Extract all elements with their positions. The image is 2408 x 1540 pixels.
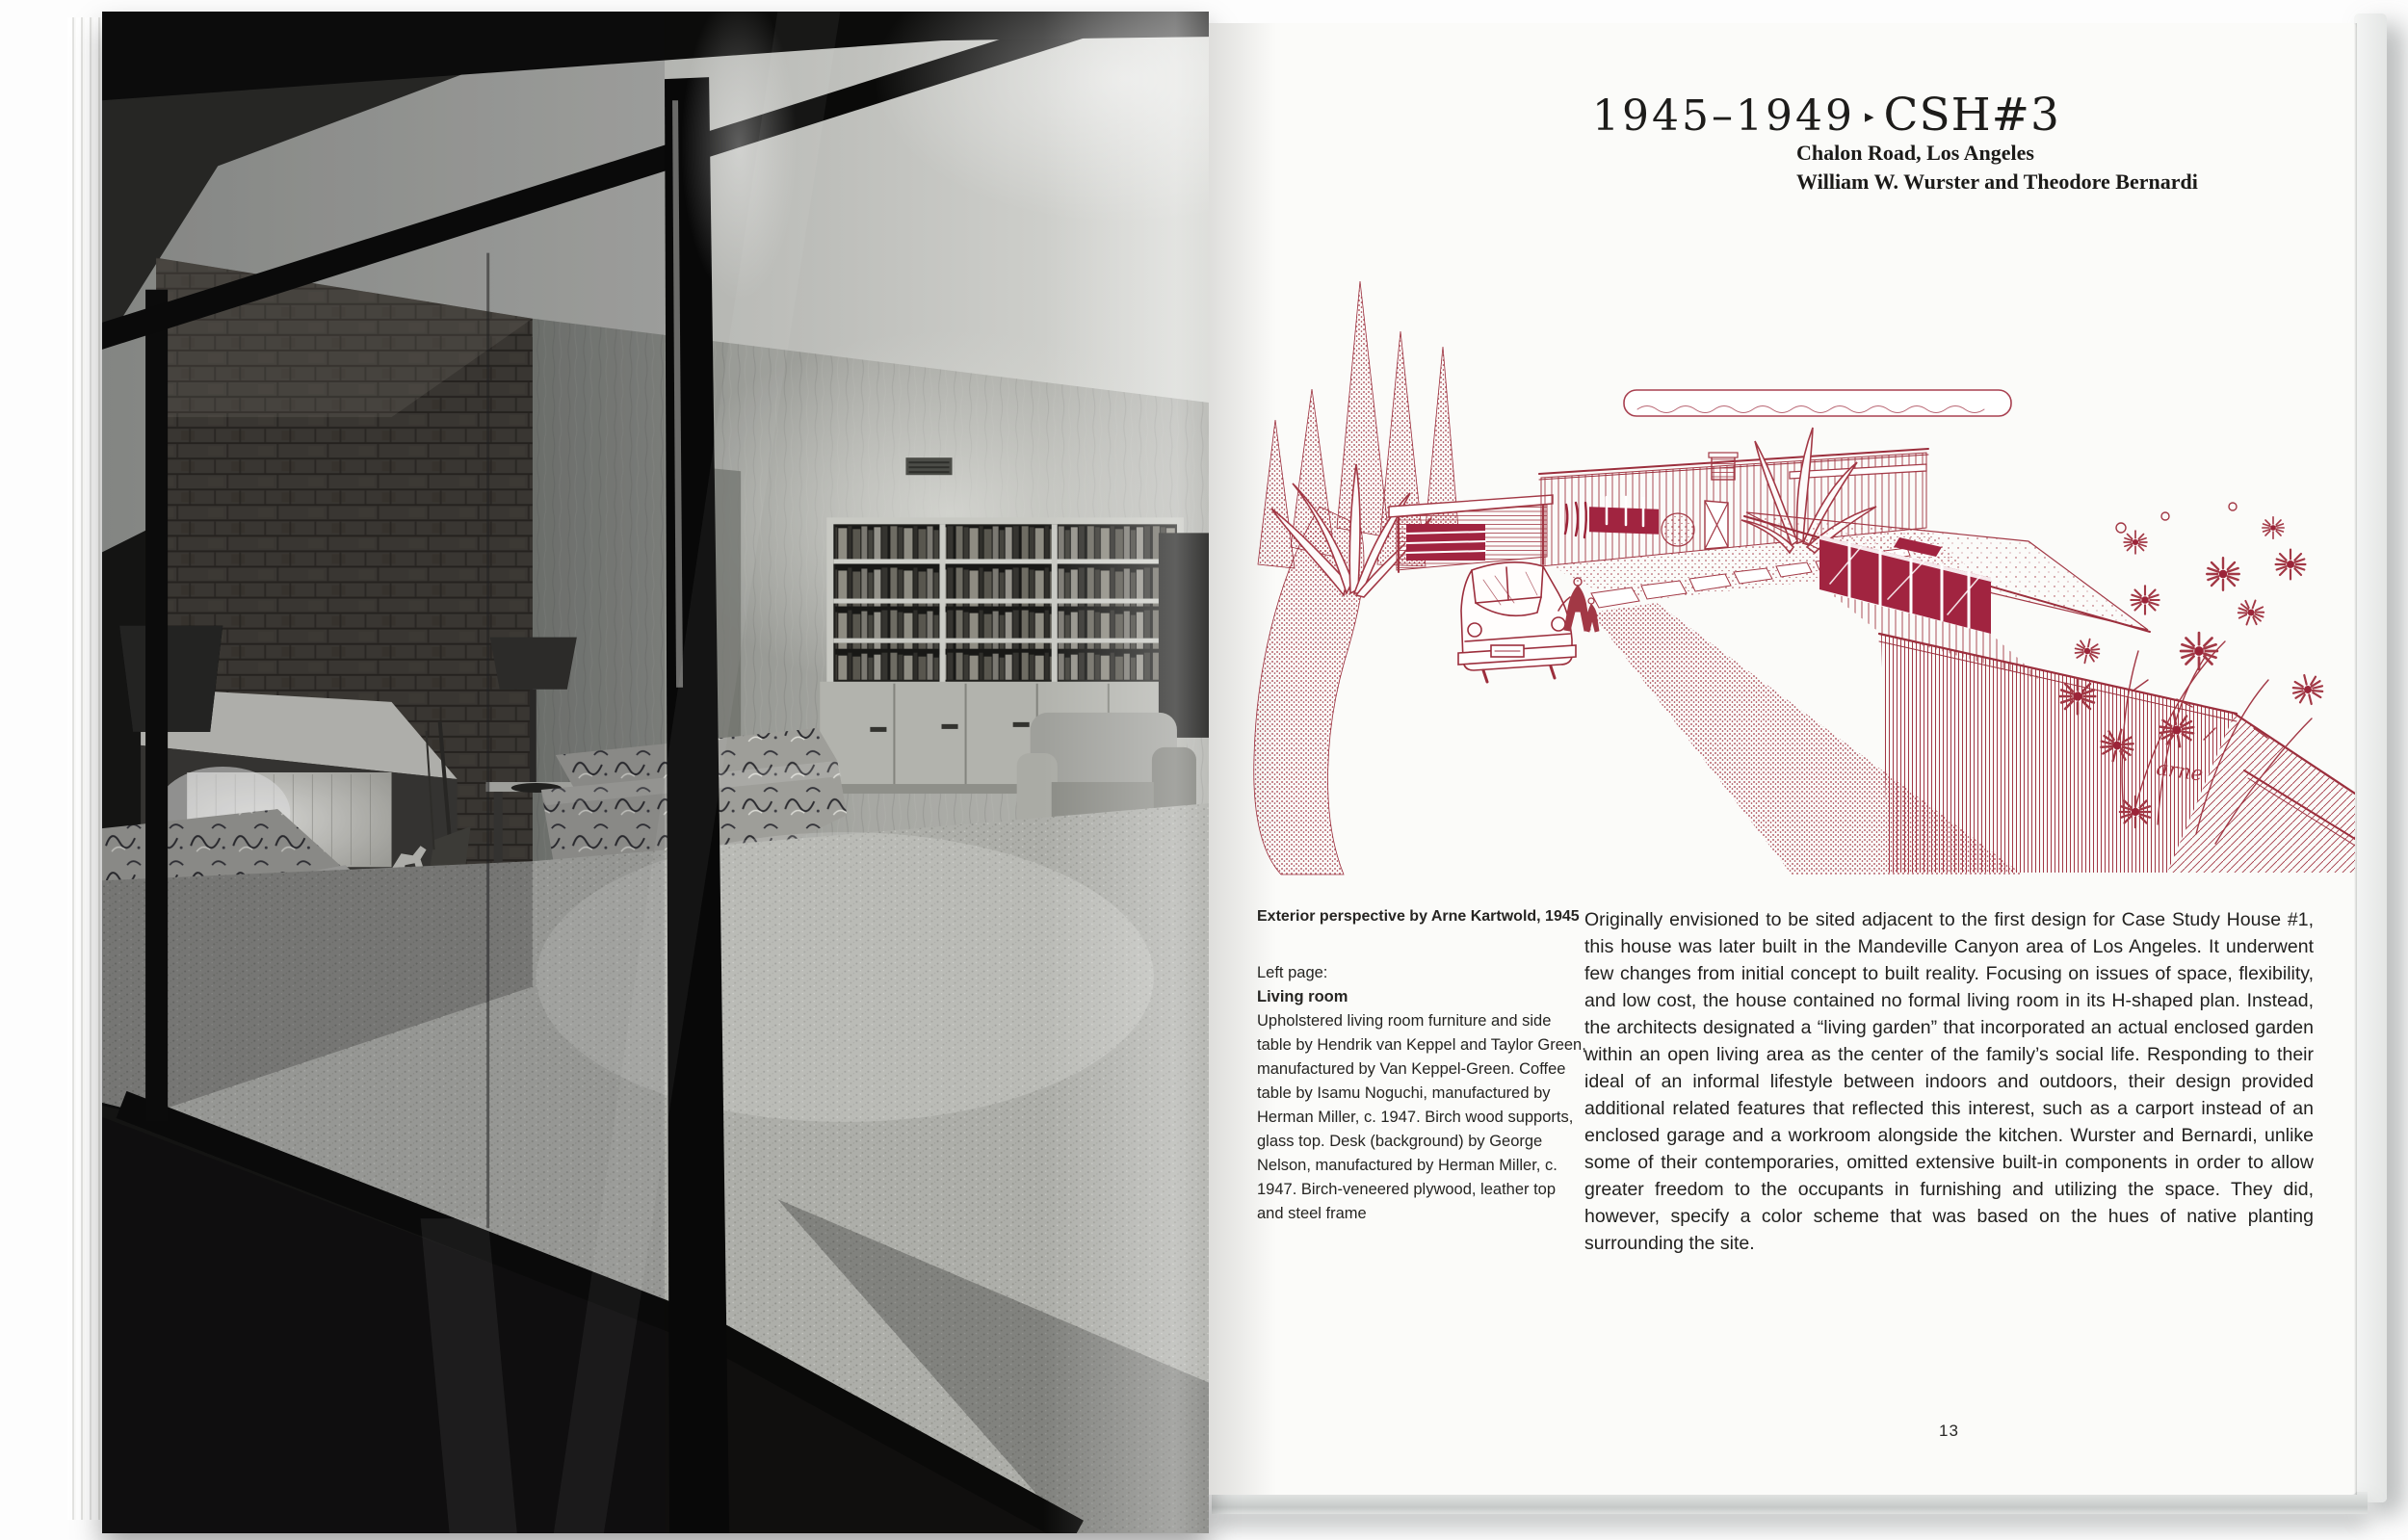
page-fore-edge-left: [67, 17, 104, 1520]
caption-description: Upholstered living room furniture and si…: [1257, 1009, 1586, 1226]
caption-block: Exterior perspective by Arne Kartwold, 1…: [1257, 904, 1586, 1226]
air-vent: [905, 457, 952, 475]
triangle-bullet-icon: ▸: [1865, 106, 1874, 127]
body-paragraph: Originally envisioned to be sited adjace…: [1584, 906, 2314, 1257]
address-line: Chalon Road, Los Angeles: [1796, 139, 2198, 168]
car: [1458, 562, 1576, 682]
cloud: [1624, 390, 2011, 416]
chapter-subtitle: Chalon Road, Los Angeles William W. Wurs…: [1796, 139, 2198, 196]
glass-tint: [102, 12, 665, 1533]
chapter-header: 1945–1949▸CSH#3: [1592, 89, 2060, 142]
living-room-photo: [102, 12, 1209, 1533]
chapter-house-name: CSH#3: [1884, 89, 2060, 142]
page-gloss-sheen: [1043, 12, 1209, 1533]
pages-behind-right-edge: [2354, 13, 2387, 1502]
exterior-perspective-drawing: arne: [1252, 275, 2355, 877]
caption-credit: Exterior perspective by Arne Kartwold, 1…: [1257, 904, 1586, 928]
left-page-photograph: [102, 12, 1209, 1533]
caption-left-page-label: Left page:: [1257, 961, 1586, 985]
slat-fence: [1879, 634, 2355, 873]
page-number: 13: [1584, 1422, 2314, 1441]
chapter-years: 1945–1949: [1592, 91, 1855, 141]
carport: [1389, 495, 1553, 572]
right-page: 1945–1949▸CSH#3 Chalon Road, Los Angeles…: [1209, 23, 2357, 1495]
caption-subject: Living room: [1257, 985, 1586, 1009]
pages-behind-bottom-edge: [1212, 1492, 2368, 1514]
architects-line: William W. Wurster and Theodore Bernardi: [1796, 168, 2198, 196]
book-spread: 1945–1949▸CSH#3 Chalon Road, Los Angeles…: [0, 0, 2408, 1540]
